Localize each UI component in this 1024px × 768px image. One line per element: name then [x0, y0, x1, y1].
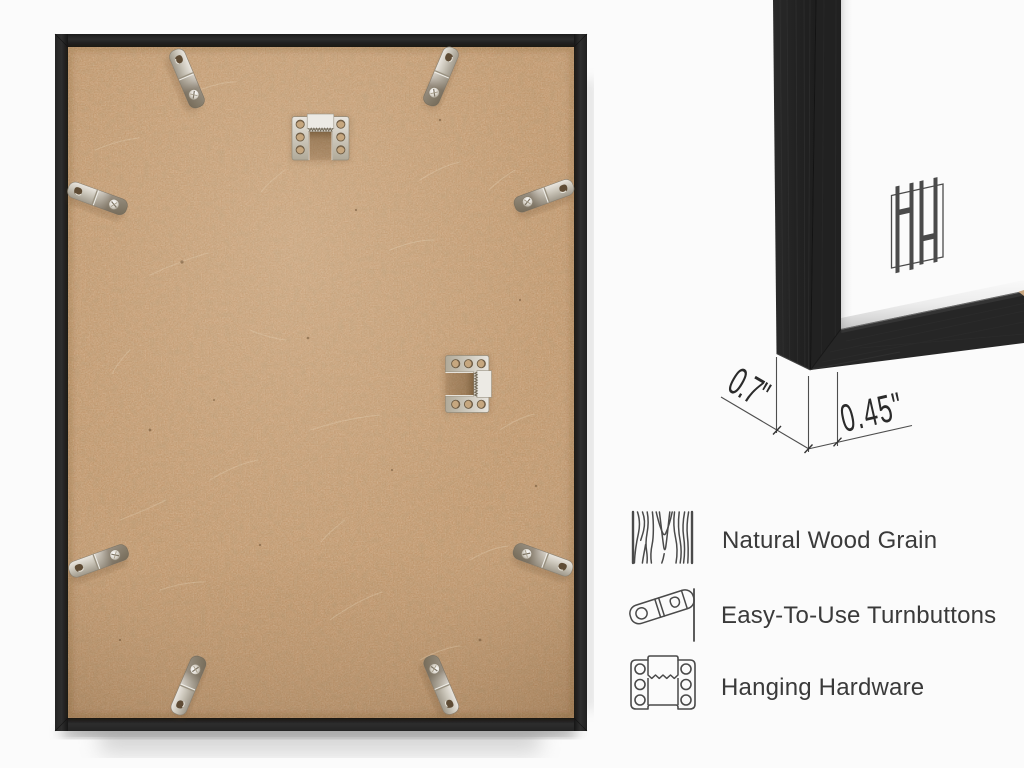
svg-text:0.7": 0.7" — [721, 359, 776, 416]
svg-text:Natural Wood Grain: Natural Wood Grain — [722, 527, 937, 554]
svg-text:Hanging Hardware: Hanging Hardware — [721, 674, 924, 701]
svg-text:Easy-To-Use Turnbuttons: Easy-To-Use Turnbuttons — [721, 602, 996, 629]
svg-text:0.45": 0.45" — [836, 384, 907, 440]
